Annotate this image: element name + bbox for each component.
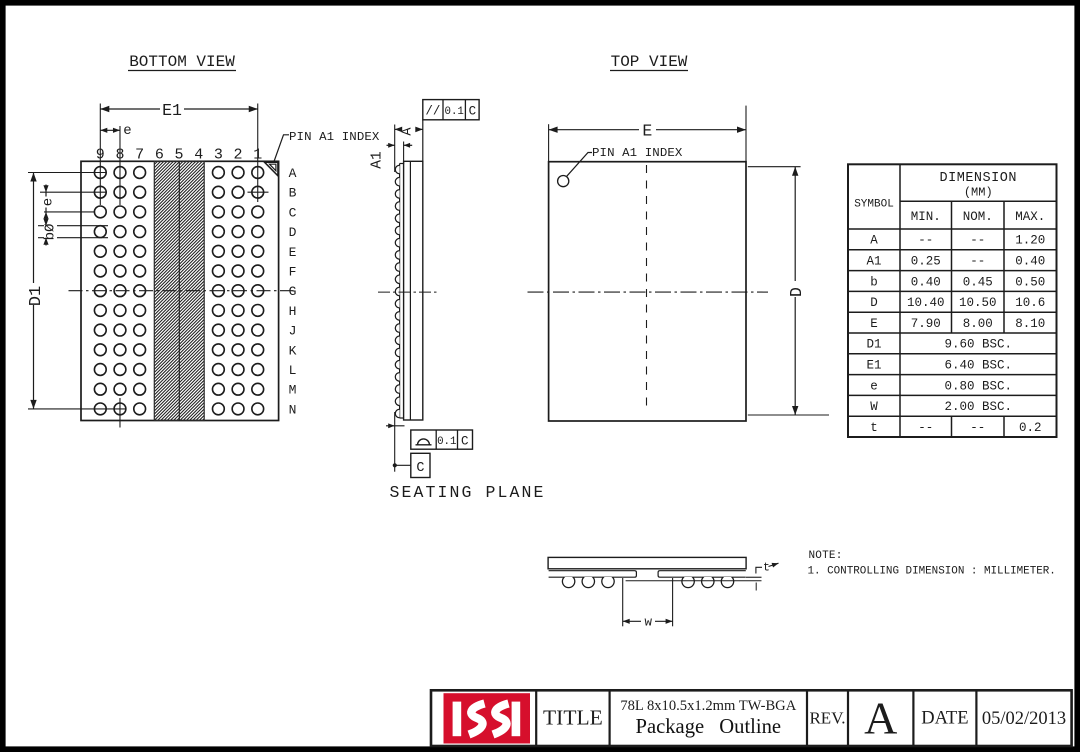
svg-text:DIMENSION: DIMENSION (940, 171, 1017, 186)
svg-text:E: E (289, 245, 297, 260)
svg-text:--: -- (918, 234, 933, 248)
svg-text:--: -- (918, 421, 933, 435)
svg-text:(MM): (MM) (964, 186, 993, 200)
svg-text:7: 7 (135, 146, 144, 163)
svg-text:C: C (289, 205, 297, 220)
svg-text:PIN A1 INDEX: PIN A1 INDEX (289, 130, 380, 144)
svg-text://: // (425, 105, 440, 119)
svg-text:w: w (645, 616, 653, 630)
svg-text:0.45: 0.45 (963, 275, 993, 289)
svg-text:NOM.: NOM. (963, 210, 993, 224)
svg-text:10.40: 10.40 (907, 296, 945, 310)
svg-text:PIN A1 INDEX: PIN A1 INDEX (592, 146, 683, 160)
svg-text:--: -- (970, 234, 985, 248)
svg-text:0.1: 0.1 (437, 436, 456, 448)
svg-text:0.40: 0.40 (1015, 255, 1045, 269)
svg-text:0.25: 0.25 (911, 255, 941, 269)
svg-text:5: 5 (175, 146, 184, 163)
svg-text:SEATING PLANE: SEATING PLANE (389, 483, 545, 502)
svg-text:2.00 BSC.: 2.00 BSC. (944, 400, 1012, 414)
svg-text:t: t (870, 421, 878, 435)
svg-text:3: 3 (214, 146, 223, 163)
svg-text:8.10: 8.10 (1015, 317, 1045, 331)
svg-text:2: 2 (234, 146, 243, 163)
svg-text:H: H (289, 304, 297, 319)
svg-text:0.2: 0.2 (1019, 421, 1042, 435)
svg-text:A1: A1 (866, 255, 881, 269)
svg-text:D1: D1 (866, 338, 881, 352)
svg-text:C: C (461, 435, 469, 449)
svg-text:05/02/2013: 05/02/2013 (982, 709, 1066, 729)
svg-text:NOTE:: NOTE: (809, 550, 843, 562)
svg-text:1.20: 1.20 (1015, 234, 1045, 248)
svg-text:W: W (870, 400, 878, 414)
svg-text:A: A (870, 234, 878, 248)
svg-text:78L 8x10.5x1.2mm TW-BGA: 78L 8x10.5x1.2mm TW-BGA (620, 698, 796, 714)
svg-text:M: M (289, 383, 297, 398)
svg-text:7.90: 7.90 (911, 317, 941, 331)
svg-text:e: e (870, 379, 878, 393)
svg-text:0.40: 0.40 (911, 275, 941, 289)
svg-text:--: -- (970, 421, 985, 435)
svg-text:A: A (401, 127, 416, 136)
svg-text:E: E (870, 317, 878, 331)
svg-text:G: G (289, 284, 297, 299)
svg-text:A: A (289, 166, 297, 181)
svg-text:e: e (41, 198, 57, 206)
svg-text:D: D (870, 296, 878, 310)
svg-text:0.1: 0.1 (444, 106, 463, 118)
svg-text:0.80 BSC.: 0.80 BSC. (944, 379, 1012, 393)
svg-text:Package Outline: Package Outline (636, 716, 782, 738)
svg-text:SYMBOL: SYMBOL (854, 199, 894, 211)
svg-text:bØ: bØ (43, 224, 59, 241)
svg-text:D: D (787, 287, 806, 297)
svg-text:e: e (123, 123, 131, 139)
svg-text:J: J (289, 324, 297, 339)
svg-text:t: t (763, 562, 770, 575)
svg-text:DATE: DATE (921, 709, 968, 729)
svg-text:N: N (289, 402, 297, 417)
svg-text:6: 6 (155, 146, 164, 163)
svg-text:8.00: 8.00 (963, 317, 993, 331)
svg-text:E: E (642, 122, 652, 141)
svg-text:L: L (289, 363, 297, 378)
svg-text:9.60 BSC.: 9.60 BSC. (944, 338, 1012, 352)
svg-text:6.40 BSC.: 6.40 BSC. (944, 359, 1012, 373)
svg-text:D1: D1 (27, 286, 46, 306)
svg-text:K: K (289, 343, 297, 358)
svg-text:C: C (416, 461, 424, 476)
svg-text:MAX.: MAX. (1015, 210, 1045, 224)
svg-text:D: D (289, 225, 297, 240)
svg-text:A: A (864, 693, 897, 744)
svg-text:1. CONTROLLING DIMENSION : MIL: 1. CONTROLLING DIMENSION : MILLIMETER. (808, 566, 1056, 578)
svg-text:E1: E1 (866, 359, 881, 373)
svg-text:b: b (870, 275, 878, 289)
svg-text:--: -- (970, 255, 985, 269)
svg-text:REV.: REV. (809, 709, 845, 728)
svg-text:TITLE: TITLE (543, 706, 603, 730)
svg-text:C: C (469, 105, 477, 119)
svg-text:4: 4 (194, 146, 203, 163)
svg-text:10.6: 10.6 (1015, 296, 1045, 310)
svg-text:10.50: 10.50 (959, 296, 997, 310)
svg-text:F: F (289, 265, 297, 280)
svg-text:BOTTOM VIEW: BOTTOM VIEW (129, 53, 235, 71)
svg-text:B: B (289, 186, 297, 201)
svg-text:A1: A1 (370, 151, 386, 168)
svg-text:TOP VIEW: TOP VIEW (611, 53, 688, 71)
svg-text:MIN.: MIN. (911, 210, 941, 224)
svg-text:0.50: 0.50 (1015, 275, 1045, 289)
svg-text:E1: E1 (162, 101, 182, 120)
